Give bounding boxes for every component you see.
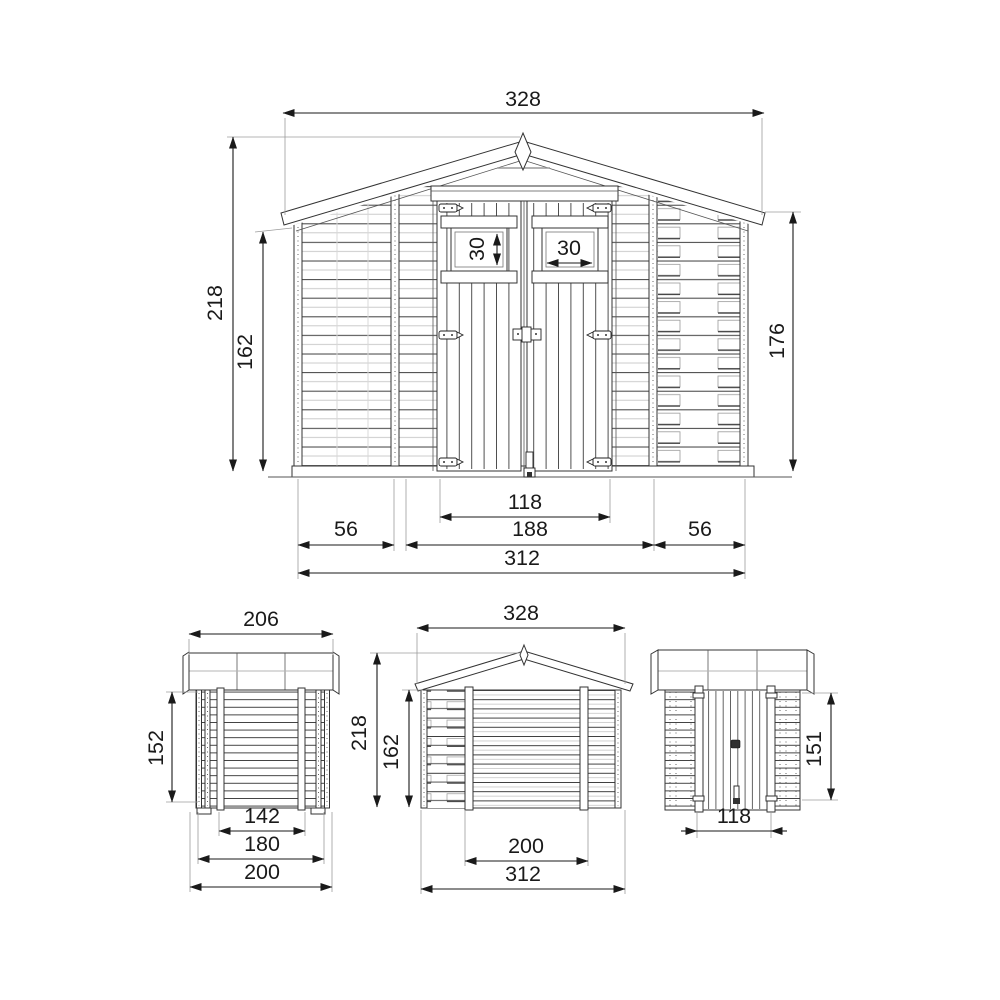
dim-window-height: 30 (465, 237, 489, 261)
door-bolt-icon (734, 786, 739, 800)
dim-front-eaves-height: 176 (765, 323, 789, 359)
dim-front-right-width: 56 (688, 517, 712, 541)
door-frame-post (767, 686, 775, 812)
dim-rear-wall-height: 162 (379, 734, 403, 770)
rear-post (465, 687, 473, 810)
roof-end-cap (333, 652, 339, 694)
dim-side-wall-width: 180 (244, 832, 280, 856)
door-bolt-icon (524, 452, 535, 477)
door-frame-post (695, 686, 703, 812)
door-detail-view: 151 118 (651, 650, 838, 838)
roof-end-cap (183, 652, 189, 694)
door-header-board (431, 186, 618, 201)
dim-rear-base-width: 312 (505, 862, 541, 886)
dim-side-inner-width: 142 (244, 804, 280, 828)
dim-rear-roof-width: 328 (503, 601, 539, 625)
roof-end-cap (807, 650, 814, 694)
roof-finial-icon (515, 133, 531, 170)
dim-rear-inner-width: 200 (508, 834, 544, 858)
dim-front-base-width: 312 (504, 546, 540, 570)
side-view: 206 152 142 180 200 (144, 607, 339, 892)
dim-front-left-width: 56 (334, 517, 358, 541)
door-view-roof-band (658, 650, 807, 690)
roof-end-cap (651, 650, 658, 694)
technical-drawing-page: 30 30 (0, 0, 1000, 1000)
dim-window-width: 30 (557, 236, 581, 260)
dim-front-door-width: 118 (508, 490, 542, 514)
window-bottom-rail (532, 271, 608, 283)
dim-side-base-width: 200 (244, 860, 280, 884)
shed-technical-drawing: 30 30 (0, 0, 1000, 1000)
rear-roof-finial-icon (520, 645, 528, 665)
door-latch-icon (513, 327, 541, 342)
dim-rear-total-height: 218 (347, 715, 371, 751)
floor-base-band (292, 466, 754, 477)
side-post (298, 688, 305, 810)
rear-view: 328 218 162 200 312 (347, 601, 633, 894)
base-skid (311, 808, 325, 814)
window-top-rail (441, 216, 517, 228)
rear-post (580, 687, 588, 810)
window-top-rail (532, 216, 608, 228)
door-handle-icon (731, 740, 740, 748)
side-wall-planks (196, 690, 326, 808)
dim-front-center-width: 188 (512, 517, 548, 541)
dim-front-total-height: 218 (203, 285, 227, 321)
dim-front-roof-width: 328 (505, 87, 541, 111)
dim-side-wall-height: 152 (144, 730, 168, 766)
front-elevation-view: 30 30 (203, 87, 801, 579)
rear-lap-boards (427, 690, 465, 808)
door-assembly: 30 30 (431, 186, 618, 477)
dim-front-wall-height: 162 (233, 334, 257, 370)
dim-door-height: 151 (802, 731, 826, 767)
dim-side-roof-width: 206 (243, 607, 279, 631)
side-post (217, 688, 224, 810)
base-skid (197, 808, 211, 814)
window-bottom-rail (441, 271, 517, 283)
dim-door-width: 118 (717, 804, 751, 828)
